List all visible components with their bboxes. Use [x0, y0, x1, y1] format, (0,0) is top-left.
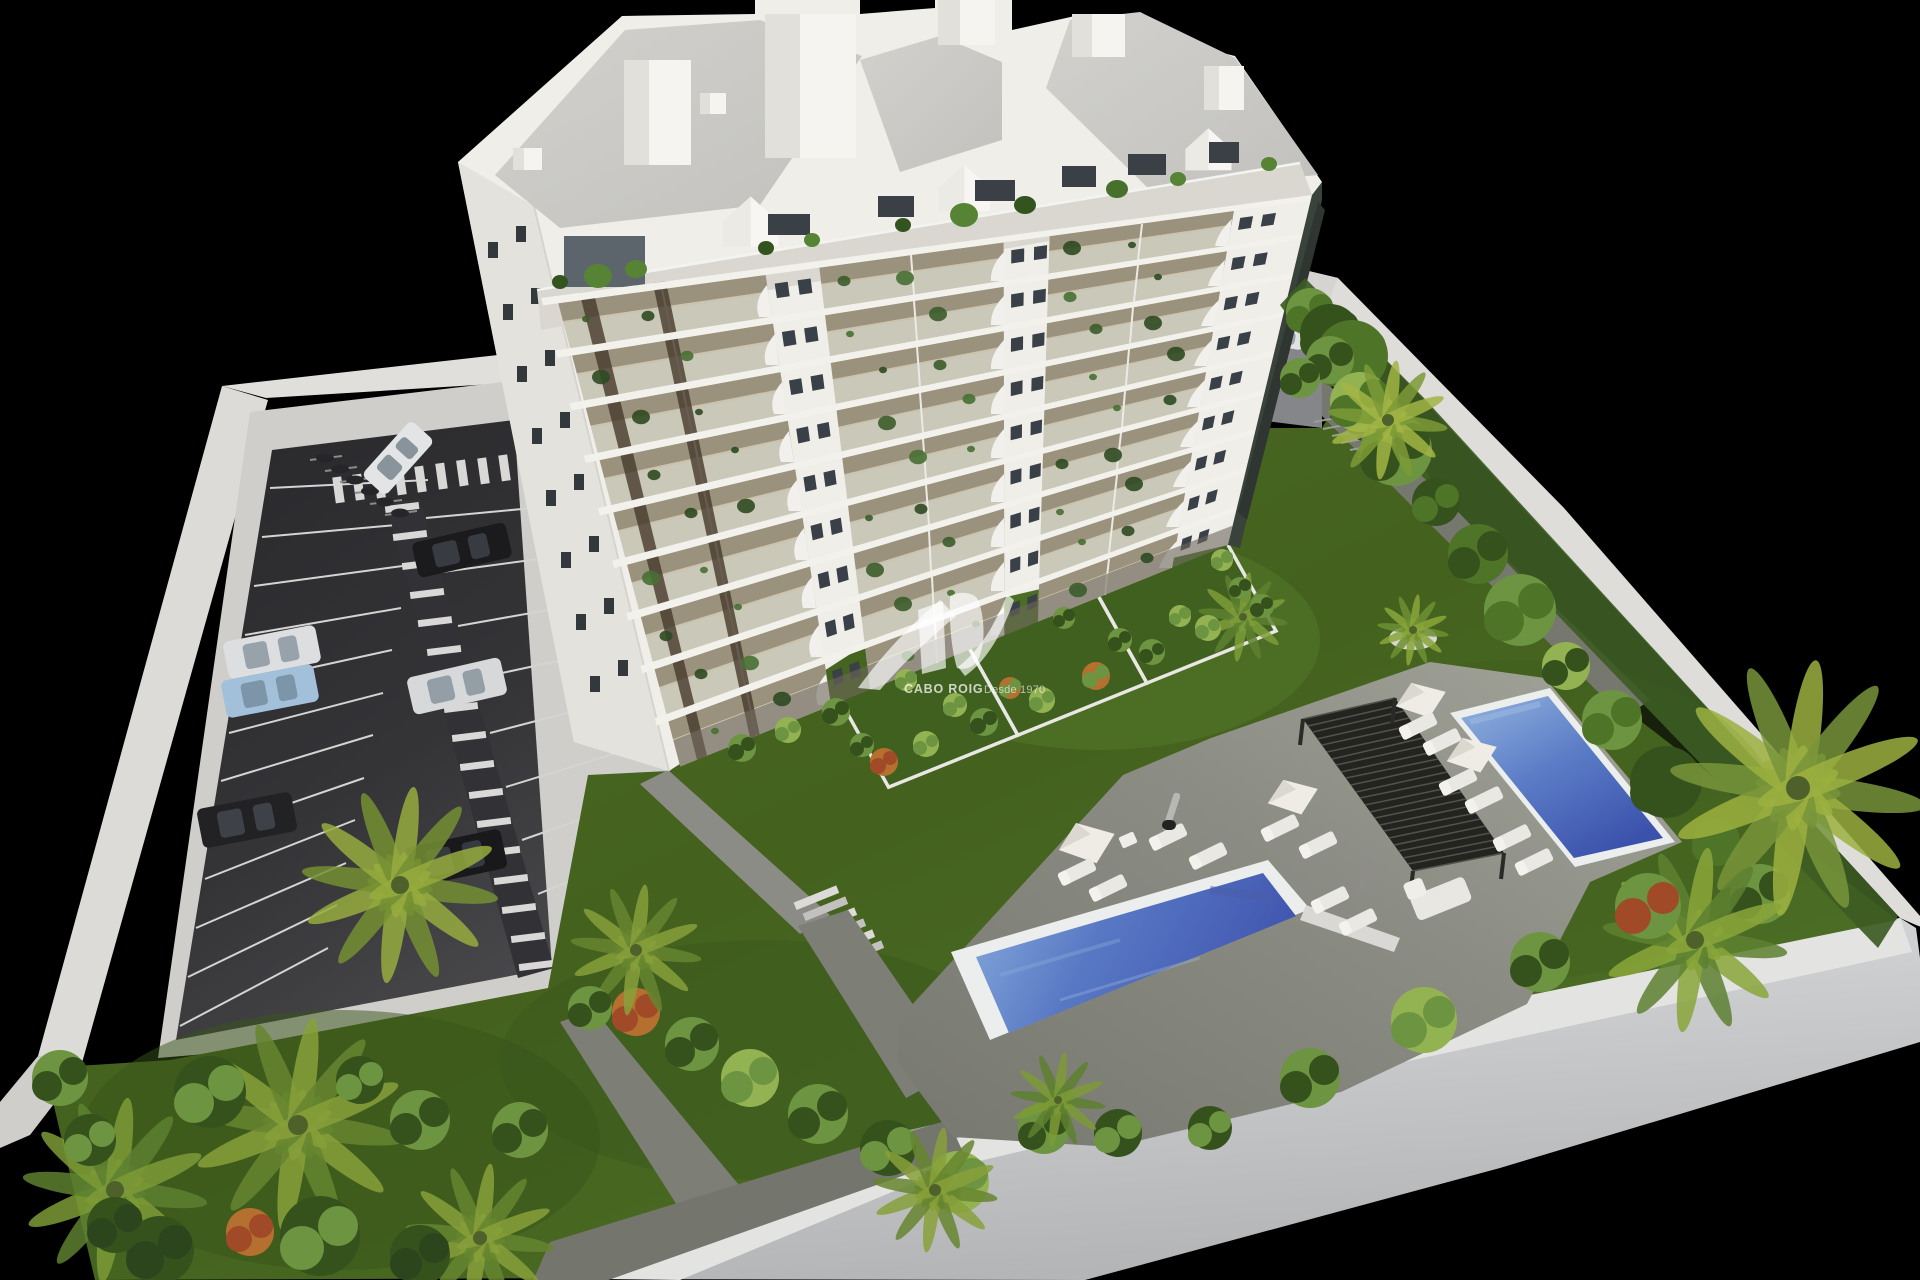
svg-text:CABO ROIG: CABO ROIG — [904, 682, 983, 696]
svg-text:Desde 1970: Desde 1970 — [984, 684, 1045, 696]
